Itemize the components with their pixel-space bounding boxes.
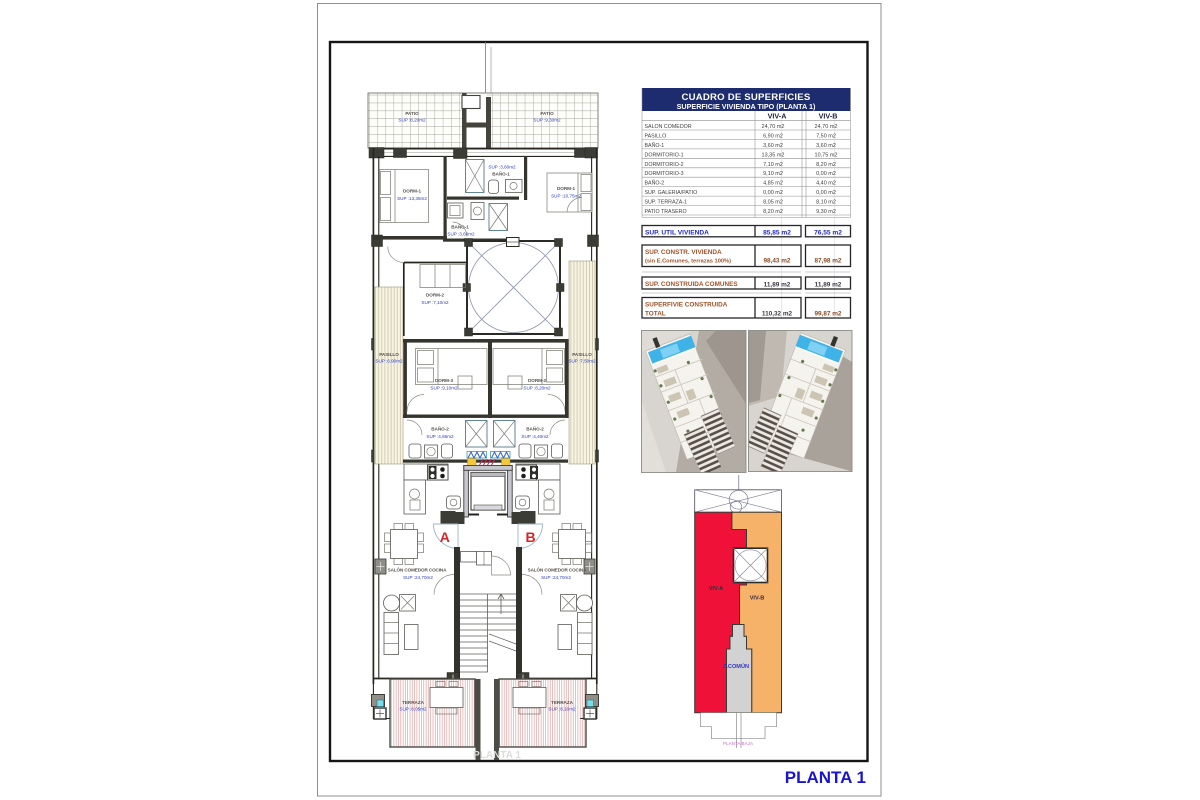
svg-text:TERRAZA: TERRAZA	[402, 700, 425, 705]
svg-text:PATIO TRASERO: PATIO TRASERO	[645, 209, 687, 215]
svg-text:PLANTA 1: PLANTA 1	[473, 750, 521, 761]
svg-text:SUP :8,05m2: SUP :8,05m2	[399, 707, 427, 712]
svg-text:SUP :8,20m2: SUP :8,20m2	[523, 386, 551, 391]
svg-text:0,00 m2: 0,00 m2	[763, 190, 783, 196]
svg-text:DORMITORIO-2: DORMITORIO-2	[645, 162, 684, 168]
svg-text:SUP :4,40m2: SUP :4,40m2	[521, 434, 549, 439]
svg-text:DORM-2: DORM-2	[528, 378, 547, 383]
svg-text:SUPERFIVIE CONSTRUIDA: SUPERFIVIE CONSTRUIDA	[645, 301, 728, 308]
svg-text:SUP :9,10m2: SUP :9,10m2	[430, 386, 458, 391]
svg-text:9,10 m2: 9,10 m2	[763, 171, 783, 177]
svg-text:Z.COMÚN: Z.COMÚN	[723, 663, 749, 670]
svg-text:11,89 m2: 11,89 m2	[815, 281, 842, 288]
svg-text:7,50 m2: 7,50 m2	[816, 134, 836, 140]
svg-text:SUP :10,75m2: SUP :10,75m2	[551, 194, 581, 199]
svg-text:B: B	[525, 529, 535, 545]
svg-text:BAÑO-1: BAÑO-1	[645, 142, 665, 149]
svg-text:SALON COMEDOR: SALON COMEDOR	[645, 124, 692, 130]
svg-text:SUP. CONSTR. VIVIENDA: SUP. CONSTR. VIVIENDA	[645, 249, 722, 256]
svg-text:SUP :9,30m2: SUP :9,30m2	[533, 118, 561, 123]
svg-text:4,40 m2: 4,40 m2	[816, 181, 836, 187]
svg-text:99,87 m2: 99,87 m2	[814, 311, 841, 318]
svg-text:SUP :6,90m2: SUP :6,90m2	[375, 359, 403, 364]
svg-text:3,60 m2: 3,60 m2	[763, 143, 783, 149]
svg-text:SUP :24,70m2: SUP :24,70m2	[541, 575, 571, 580]
svg-text:SUP. TERRAZA-1: SUP. TERRAZA-1	[645, 200, 688, 206]
svg-text:4,85 m2: 4,85 m2	[763, 181, 783, 187]
svg-text:SALÓN COMEDOR COCINA: SALÓN COMEDOR COCINA	[528, 566, 588, 573]
svg-text:SUP. GALERIA/PATIO: SUP. GALERIA/PATIO	[645, 190, 698, 196]
svg-text:13,35 m2: 13,35 m2	[762, 152, 785, 158]
svg-text:DORMITORIO-3: DORMITORIO-3	[645, 171, 684, 177]
svg-text:VIV-B: VIV-B	[750, 596, 765, 602]
svg-text:98,43 m2: 98,43 m2	[763, 258, 790, 265]
svg-text:6,90 m2: 6,90 m2	[763, 134, 783, 140]
svg-text:DORM-3: DORM-3	[435, 378, 454, 383]
svg-text:9,30 m2: 9,30 m2	[816, 209, 836, 215]
svg-text:SUPERFICIE VIVIENDA TIPO (PLA: SUPERFICIE VIVIENDA TIPO (PLANTA 1)	[677, 102, 816, 111]
svg-text:BAÑO-2: BAÑO-2	[431, 426, 449, 432]
svg-text:DORMITORIO-1: DORMITORIO-1	[645, 152, 684, 158]
svg-text:76,55 m2: 76,55 m2	[814, 230, 842, 237]
svg-text:DORM-1: DORM-1	[403, 189, 422, 194]
svg-text:TOTAL: TOTAL	[645, 310, 666, 317]
svg-text:SUP :3,60m2: SUP :3,60m2	[488, 165, 516, 170]
svg-text:PLANTA BAJA: PLANTA BAJA	[723, 741, 754, 746]
svg-text:8,10 m2: 8,10 m2	[816, 200, 836, 206]
svg-text:8,20 m2: 8,20 m2	[763, 209, 783, 215]
svg-text:TERRAZA: TERRAZA	[551, 700, 574, 705]
svg-text:BAÑO-2: BAÑO-2	[645, 180, 665, 187]
svg-text:PATIO: PATIO	[405, 111, 419, 116]
svg-text:VIV-B: VIV-B	[819, 112, 838, 121]
svg-text:PATIO: PATIO	[540, 111, 554, 116]
svg-text:PASILLO: PASILLO	[645, 134, 667, 140]
svg-text:8,05 m2: 8,05 m2	[763, 200, 783, 206]
svg-text:SUP :8,20m2: SUP :8,20m2	[398, 118, 426, 123]
svg-text:SUP :24,70m2: SUP :24,70m2	[403, 575, 433, 580]
svg-text:PASILLO: PASILLO	[379, 352, 399, 357]
svg-text:24,70 m2: 24,70 m2	[815, 124, 838, 130]
svg-text:VIV-A: VIV-A	[768, 112, 787, 121]
svg-text:8,20 m2: 8,20 m2	[816, 162, 836, 168]
svg-text:BAÑO-2: BAÑO-2	[526, 426, 544, 432]
svg-text:85,85 m2: 85,85 m2	[763, 230, 791, 237]
svg-text:SUP :7,10m2: SUP :7,10m2	[421, 300, 449, 305]
svg-text:110,32 m2: 110,32 m2	[762, 311, 793, 318]
svg-text:A: A	[440, 529, 450, 545]
svg-text:SUP :13,35m2: SUP :13,35m2	[397, 196, 427, 201]
svg-text:PLANTA 1: PLANTA 1	[785, 768, 866, 787]
svg-text:SUP :7,50m2: SUP :7,50m2	[568, 359, 596, 364]
svg-text:3,60 m2: 3,60 m2	[816, 143, 836, 149]
svg-text:SALÓN COMEDOR COCINA: SALÓN COMEDOR COCINA	[388, 566, 448, 573]
svg-text:0,00 m2: 0,00 m2	[816, 171, 836, 177]
svg-text:7,10 m2: 7,10 m2	[763, 162, 783, 168]
svg-text:SUP :4,85m2: SUP :4,85m2	[426, 434, 454, 439]
svg-text:87,98 m2: 87,98 m2	[814, 258, 841, 265]
svg-text:SUP :8,10m2: SUP :8,10m2	[548, 707, 576, 712]
svg-text:SUP. CONSTRUIDA COMUNES: SUP. CONSTRUIDA COMUNES	[645, 281, 738, 288]
svg-text:10,75 m2: 10,75 m2	[815, 152, 838, 158]
svg-text:VIV-A: VIV-A	[709, 586, 724, 592]
svg-text:0,00 m2: 0,00 m2	[816, 190, 836, 196]
svg-text:BAÑO-1: BAÑO-1	[492, 171, 510, 177]
svg-text:DORM-2: DORM-2	[426, 293, 445, 298]
svg-text:SUP :3,60m2: SUP :3,60m2	[447, 232, 475, 237]
svg-text:24,70 m2: 24,70 m2	[762, 124, 785, 130]
svg-text:SUP. UTIL VIVIENDA: SUP. UTIL VIVIENDA	[645, 229, 709, 236]
svg-text:DORM-1: DORM-1	[557, 186, 576, 191]
svg-text:11,89 m2: 11,89 m2	[764, 281, 791, 288]
svg-text:PASILLO: PASILLO	[572, 352, 592, 357]
svg-text:(sin E.Comunes, terrazas 100%): (sin E.Comunes, terrazas 100%)	[645, 259, 731, 265]
